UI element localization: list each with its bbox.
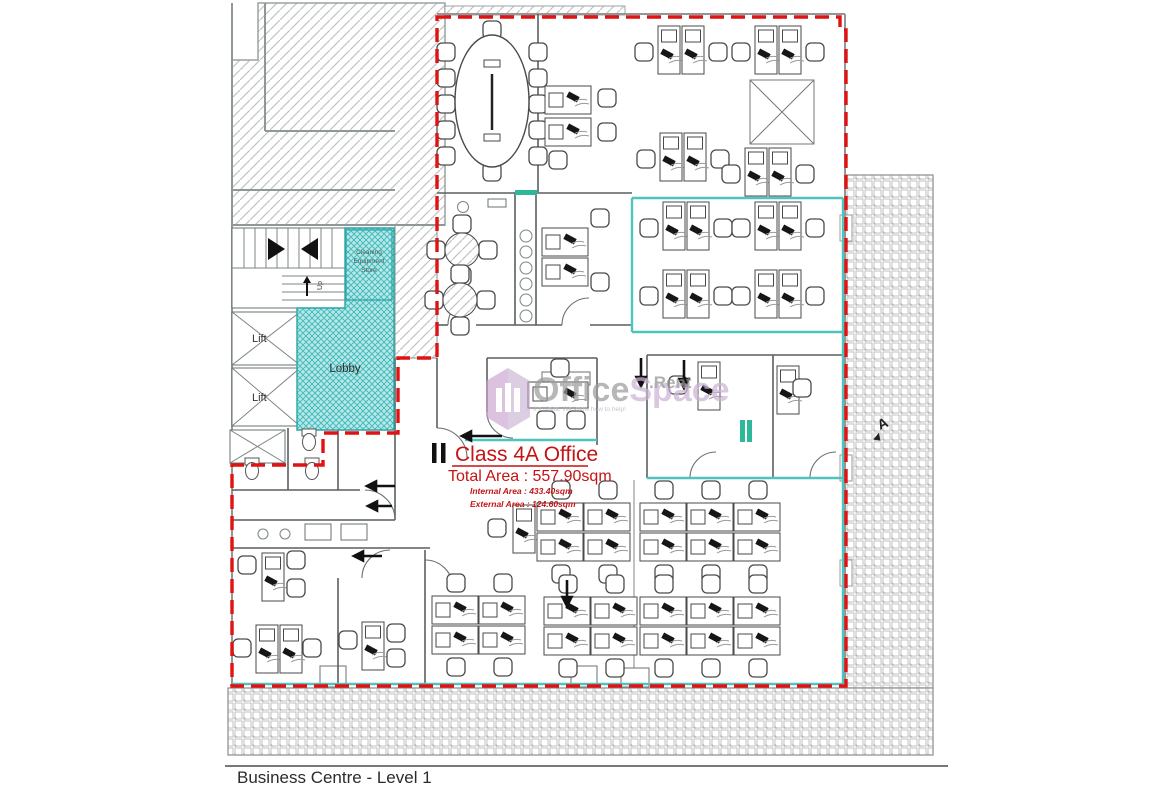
watermark-brand-suffix: .Rent	[649, 373, 692, 392]
desk-pair	[637, 133, 729, 181]
sheet-title-block: Business Centre - Level 1	[225, 766, 948, 785]
desk-pair	[640, 270, 732, 318]
office-name: Class 4A Office	[455, 443, 598, 466]
lift-lower-label: Lift	[252, 392, 267, 404]
floor-plan-page: A	[0, 0, 1170, 785]
watermark-brand-primary: Office	[533, 371, 629, 409]
watermark-logo-icon	[486, 368, 530, 430]
store-label-line1: Cleaning	[356, 249, 382, 256]
lobby-label: Lobby	[329, 363, 361, 375]
private-office-2	[777, 366, 811, 414]
desk-pair	[722, 148, 814, 196]
sheet-title: Business Centre - Level 1	[237, 768, 432, 785]
bench-row-2	[544, 575, 780, 677]
lift-upper: Lift	[232, 312, 300, 365]
store-label-line2: Equipment	[353, 258, 384, 265]
left-offices	[233, 551, 525, 676]
desk-cluster-a	[545, 86, 616, 169]
desk-cluster-b	[542, 209, 609, 291]
desk-pair	[640, 202, 732, 250]
store-label-line3: Store	[361, 267, 377, 274]
lift-lower: Lift	[232, 368, 300, 426]
rooflight	[750, 80, 814, 144]
watermark: OfficeSpace .Rent It's Malta. We know ho…	[486, 368, 730, 430]
office-internal-area: Internal Area : 433.40sqm	[470, 486, 573, 496]
stair-up-label: Up	[317, 281, 324, 290]
lift-upper-label: Lift	[252, 333, 267, 345]
core-zone: Up Lift Lift Lobby Cleaning Equipment St…	[230, 228, 394, 463]
floor-plan-drawing: A	[0, 0, 1170, 785]
staircase: Up	[232, 228, 345, 308]
cleaning-store: Cleaning Equipment Store	[346, 230, 392, 300]
desk-pair	[732, 202, 824, 250]
office-total-area: Total Area : 557.90sqm	[448, 468, 612, 485]
office-label-block: Class 4A Office Total Area : 557.90sqm I…	[448, 443, 612, 509]
svg-text:OfficeSpace: OfficeSpace	[533, 371, 730, 409]
desk-pair	[732, 270, 824, 318]
office-external-area: External Area : 124.60sqm	[470, 499, 576, 509]
desk-pair	[635, 26, 727, 74]
watermark-tagline: It's Malta. We know how to help!	[533, 406, 626, 413]
desk-pair	[732, 26, 824, 74]
conference-table	[437, 21, 547, 181]
